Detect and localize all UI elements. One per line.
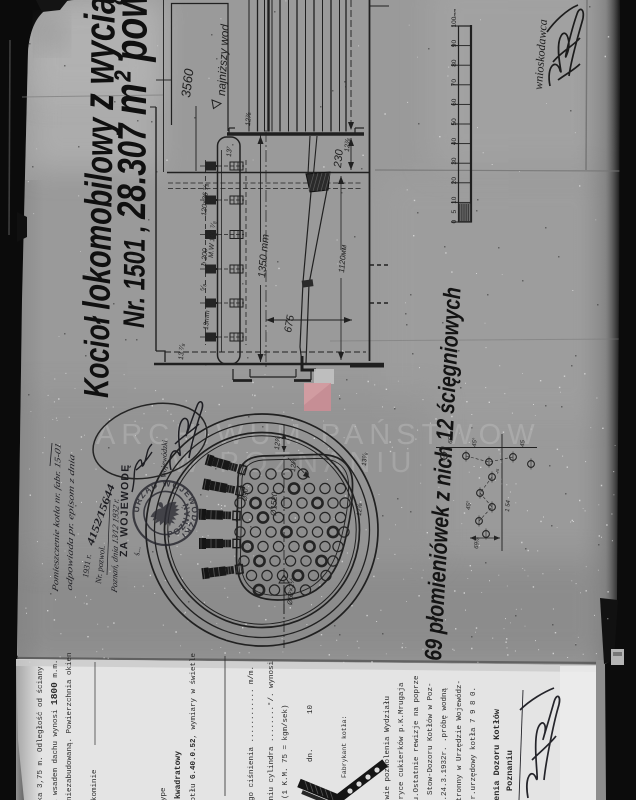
- svg-text:65⁷: 65⁷: [447, 434, 455, 444]
- svg-text:5: 5: [451, 210, 458, 214]
- svg-text:a.24.3.1932r. .próbę wodną: a.24.3.1932r. .próbę wodną: [441, 687, 449, 800]
- svg-text:eniu cylindra ........°/. wyno: eniu cylindra ........°/. wynosi: [267, 660, 276, 800]
- svg-text:12⅞: 12⅞: [290, 458, 298, 472]
- svg-text:45°: 45°: [472, 437, 479, 447]
- svg-text:Poznaniu: Poznaniu: [505, 750, 515, 791]
- svg-text:50: 50: [451, 118, 458, 126]
- svg-text:13⁷⁄₈: 13⁷⁄₈: [361, 452, 369, 466]
- svg-text:Ø1520: Ø1520: [269, 491, 279, 517]
- svg-text:12⅞: 12⅞: [274, 436, 282, 450]
- svg-text:60: 60: [451, 98, 458, 106]
- svg-text:45: 45: [520, 439, 527, 447]
- svg-text:stronny w Urzędzie Wojewódz-: stronny w Urzędzie Wojewódz-: [456, 680, 464, 800]
- svg-text:Wojewódzki: Wojewódzki: [159, 440, 169, 478]
- svg-text:kominie: kominie: [91, 769, 99, 800]
- svg-text:ħ 200: ħ 200: [201, 248, 209, 266]
- svg-text:zenia Dozoru Kotłów: zenia Dozoru Kotłów: [492, 708, 502, 800]
- svg-text:nwie pozwolenia Wydziału: nwie pozwolenia Wydziału: [384, 696, 392, 800]
- svg-text:ś...: ś...: [132, 546, 142, 557]
- svg-text:kwadratowy: kwadratowy: [174, 751, 183, 799]
- svg-text:70: 70: [451, 79, 458, 87]
- svg-text:1 54: 1 54: [505, 499, 512, 512]
- svg-text:Fabrykant kotła:: Fabrykant kotła:: [341, 716, 348, 778]
- svg-text:80: 80: [451, 59, 458, 67]
- svg-text:0: 0: [451, 220, 458, 224]
- svg-text:40: 40: [451, 137, 458, 145]
- svg-text:90: 90: [451, 39, 458, 47]
- svg-text:(1 K.M. 75 = kgm/sek): (1 K.M. 75 = kgm/sek): [282, 704, 290, 799]
- svg-text:13⁷: 13⁷: [226, 146, 234, 157]
- svg-text:ype: ype: [160, 787, 168, 800]
- svg-text:45°: 45°: [466, 500, 473, 510]
- svg-text:30: 30: [451, 157, 458, 165]
- svg-text:10: 10: [451, 196, 458, 204]
- svg-text:niezabudowaną. Powierzchnia o: niezabudowaną. Powierzchnia okien: [66, 652, 74, 800]
- svg-text:go ciśnienia ............ m/m.: go ciśnienia ............ m/m.: [248, 666, 256, 800]
- svg-text:12⅞: 12⅞: [245, 112, 253, 126]
- svg-text:13 ⁷⁄₈: 13 ⁷⁄₈: [178, 343, 186, 360]
- svg-text:20: 20: [451, 177, 458, 185]
- svg-text:13mm: 13mm: [203, 310, 211, 330]
- svg-text:r Stow-Dozoru Kotłów w Poz-: r Stow-Dozoru Kotłów w Poz-: [427, 682, 435, 800]
- svg-text:12⅞: 12⅞: [344, 138, 352, 152]
- svg-text:10: 10: [307, 704, 315, 714]
- svg-text:bryce cukierków p.K.Mrugaja: bryce cukierków p.K.Mrugaja: [398, 682, 406, 800]
- svg-text:kotłu G.40.0.52, wymiary w świ: kotłu G.40.0.52, wymiary w świetle: [190, 653, 198, 800]
- svg-text:cu.Ostatnie rewizje na poprze: cu.Ostatnie rewizje na poprze: [413, 675, 421, 800]
- svg-text:Nr.urzędowy kotła 7 9 8 0.: Nr.urzędowy kotła 7 9 8 0.: [470, 687, 478, 800]
- svg-text:12⅞: 12⅞: [356, 502, 364, 516]
- svg-text:dn.: dn.: [307, 748, 315, 762]
- svg-text:⁵⁄₈: ⁵⁄₈: [200, 284, 207, 292]
- svg-text:100ₘₘ: 100ₘₘ: [451, 9, 458, 28]
- svg-text:ika 3,75 m. Odległość od ści: ika 3,75 m. Odległość od ściany: [37, 666, 45, 800]
